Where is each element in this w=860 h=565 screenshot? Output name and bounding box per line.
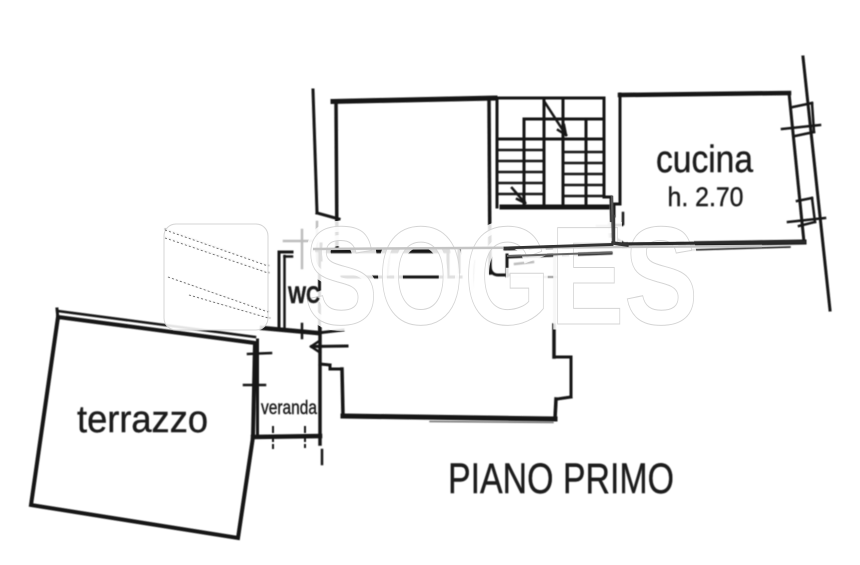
svg-text:terrazzo: terrazzo (77, 399, 208, 441)
svg-text:WC: WC (288, 282, 320, 309)
svg-text:SOGES: SOGES (304, 197, 698, 354)
svg-text:veranda: veranda (261, 398, 317, 419)
svg-text:h. 2.70: h. 2.70 (668, 182, 744, 212)
svg-text:PIANO PRIMO: PIANO PRIMO (448, 455, 674, 503)
svg-text:cucina: cucina (656, 139, 754, 181)
